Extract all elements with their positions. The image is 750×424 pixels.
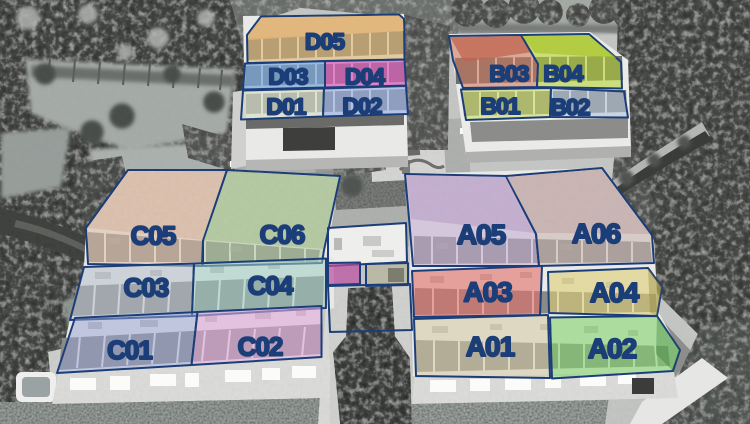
svg-text:C06: C06 [260,219,305,249]
svg-text:B03: B03 [489,60,528,86]
svg-text:B01: B01 [480,93,520,119]
svg-text:A05: A05 [457,219,506,250]
svg-text:D05: D05 [305,29,345,55]
svg-text:D01: D01 [266,93,306,119]
svg-text:A04: A04 [590,277,640,308]
svg-text:C05: C05 [131,220,176,250]
svg-text:C01: C01 [107,335,152,365]
svg-text:C02: C02 [238,331,283,361]
svg-text:A02: A02 [588,333,637,364]
svg-text:A03: A03 [463,277,512,308]
svg-text:A01: A01 [466,331,515,362]
svg-text:B02: B02 [550,94,589,120]
svg-text:A06: A06 [572,218,621,249]
svg-text:D02: D02 [342,93,381,119]
svg-text:C03: C03 [124,272,169,302]
svg-text:B04: B04 [543,60,583,86]
svg-text:C04: C04 [248,270,294,300]
svg-text:D04: D04 [345,63,385,89]
svg-text:D03: D03 [268,64,307,90]
